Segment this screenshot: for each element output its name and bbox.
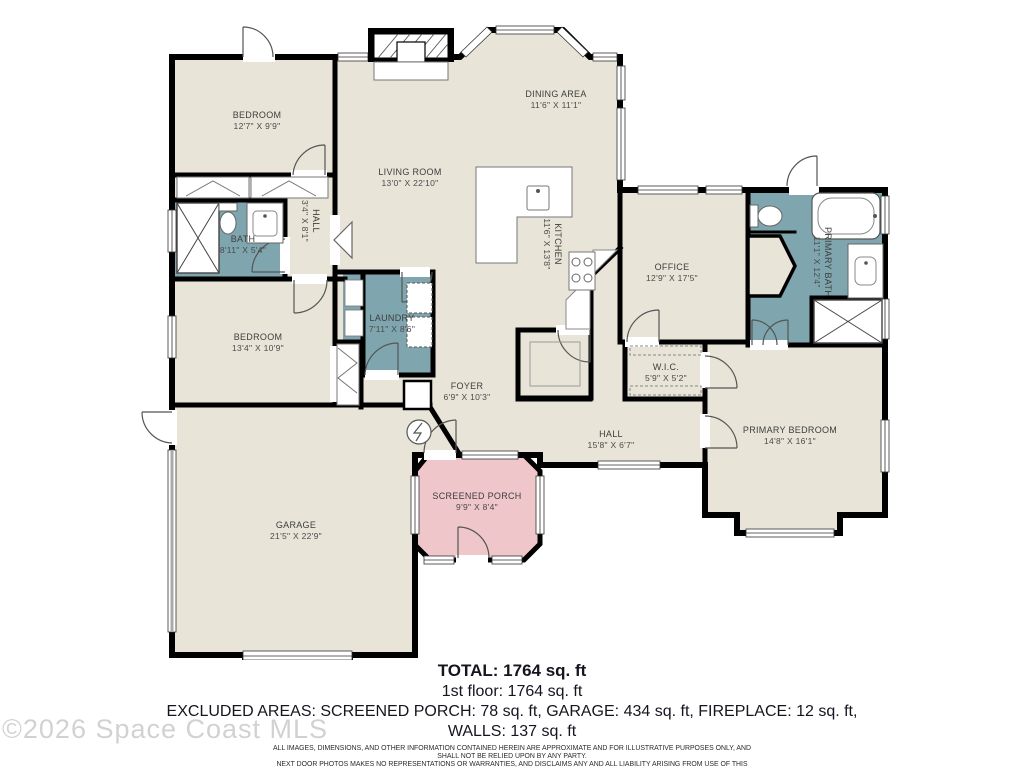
room-label-foyer: FOYER 6'9" X 10'3" — [444, 380, 491, 404]
room-label-dining-area: DINING AREA 11'6" X 11'1" — [525, 88, 586, 112]
first-floor-area: 1st floor: 1764 sq. ft — [0, 683, 1024, 701]
total-area: TOTAL: 1764 sq. ft — [0, 661, 1024, 681]
room-label-hall-big: HALL 15'8" X 6'7" — [588, 428, 635, 452]
floor-plan-drawing — [0, 0, 1024, 660]
bedroom2-closet — [337, 344, 359, 405]
washer-icon — [407, 283, 432, 313]
floor-plan-page: BEDROOM 12'7" X 9'9" DINING AREA 11'6" X… — [0, 0, 1024, 768]
room-label-garage: GARAGE 21'5" X 22'9" — [270, 519, 322, 543]
room-label-kitchen: KITCHEN 11'6" X 13'8" — [540, 218, 564, 269]
room-label-wic: W.I.C. 5'9" X 5'2" — [645, 361, 687, 385]
room-label-bedroom-1: BEDROOM 12'7" X 9'9" — [233, 109, 282, 133]
shower — [814, 300, 882, 343]
hearth — [374, 62, 448, 80]
cabinet — [345, 280, 363, 306]
toilet-icon — [750, 205, 782, 227]
mls-watermark: ©2026 Space Coast MLS — [2, 714, 328, 745]
room-label-primary-bedroom: PRIMARY BEDROOM 14'8" X 16'1" — [743, 424, 837, 448]
front-door — [787, 156, 817, 186]
toilet-icon — [219, 203, 237, 234]
room-label-primary-bath: PRIMARY BATH 11'1" X 12'4" — [810, 227, 834, 297]
attic-access — [404, 381, 431, 409]
water-heater-icon — [407, 420, 431, 444]
room-label-bath: BATH 8'11" X 5'4" — [220, 233, 266, 257]
vanity-sink-icon — [848, 244, 883, 298]
room-label-screened-porch: SCREENED PORCH 9'9" X 8'4" — [432, 490, 521, 514]
room-label-living-room: LIVING ROOM 13'0" X 22'10" — [378, 166, 441, 190]
fireplace — [368, 28, 454, 80]
cooktop — [569, 252, 595, 290]
room-label-hall-small: HALL 3'4" X 8'1" — [298, 200, 322, 242]
room-label-bedroom-2: BEDROOM 13'4" X 10'9" — [232, 331, 284, 355]
room-label-laundry: LAUNDRY 7'11" X 8'6" — [369, 312, 415, 336]
garage-door — [243, 651, 352, 660]
room-label-office: OFFICE 12'9" X 17'5" — [646, 261, 698, 285]
disclaimer: ALL IMAGES, DIMENSIONS, AND OTHER INFORM… — [272, 745, 752, 768]
cabinet — [345, 310, 363, 336]
